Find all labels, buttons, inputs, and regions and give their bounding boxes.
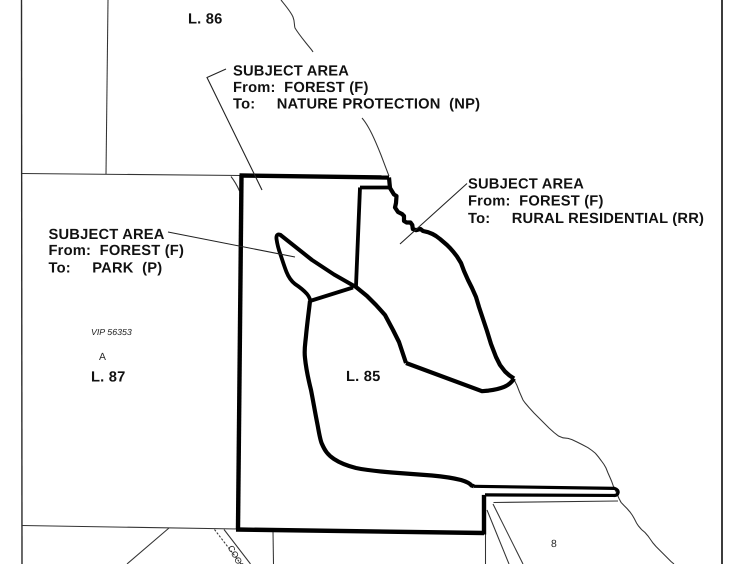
svg-text:8: 8 — [551, 539, 557, 550]
svg-text:From: FOREST (F): From: FOREST (F) — [468, 193, 604, 209]
svg-text:L. 85: L. 85 — [346, 369, 380, 385]
svg-text:SUBJECT AREA: SUBJECT AREA — [468, 176, 584, 192]
svg-text:From: FOREST (F): From: FOREST (F) — [49, 243, 185, 259]
svg-text:SUBJECT AREA: SUBJECT AREA — [233, 63, 349, 79]
svg-text:From: FOREST (F): From: FOREST (F) — [233, 80, 369, 96]
svg-text:L. 86: L. 86 — [188, 12, 222, 28]
svg-text:SUBJECT AREA: SUBJECT AREA — [49, 227, 165, 243]
svg-text:L. 87: L. 87 — [91, 370, 125, 386]
svg-text:To: PARK (P): To: PARK (P) — [49, 261, 163, 277]
svg-text:VIP 56353: VIP 56353 — [91, 327, 132, 337]
svg-text:To: NATURE PROTECTION (NP: To: NATURE PROTECTION (NP) — [233, 96, 480, 112]
svg-text:A: A — [99, 352, 106, 363]
svg-text:To: RURAL RESIDENTIAL (RR): To: RURAL RESIDENTIAL (RR) — [468, 211, 704, 227]
